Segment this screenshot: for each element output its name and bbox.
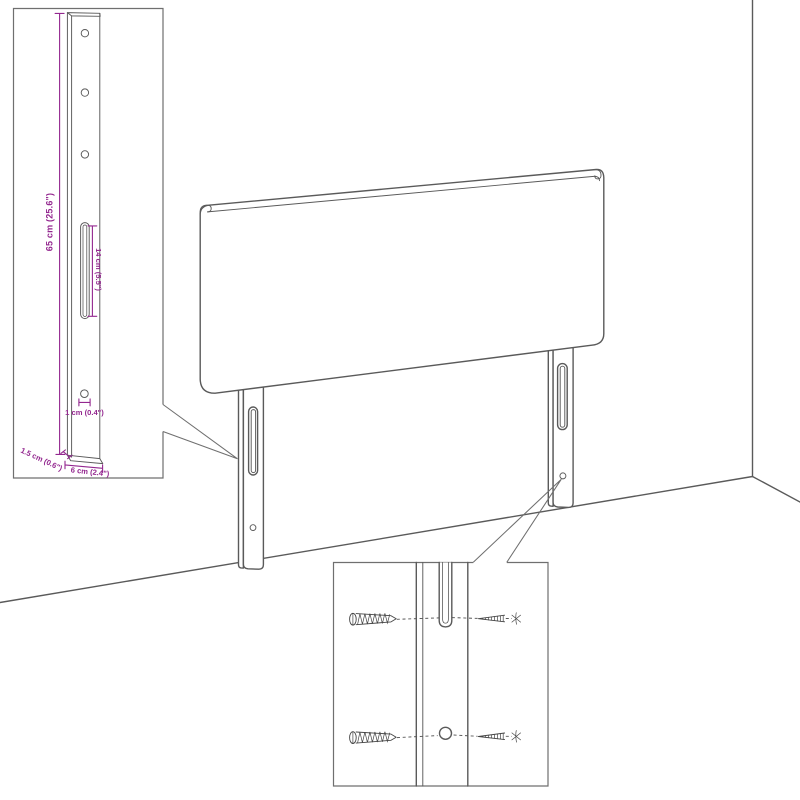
left-leg-side-face	[239, 386, 244, 568]
screw-right-top	[478, 613, 520, 625]
leg-detail-strip	[67, 13, 102, 464]
detail-hole	[440, 727, 452, 739]
floor-line-left	[0, 477, 753, 603]
left-leg	[239, 386, 264, 570]
dim-leg-height-label: 65 cm (25.6")	[45, 193, 55, 251]
strip-bottom-face	[67, 455, 102, 463]
right-leg-front-face	[553, 345, 573, 508]
detail-slot	[439, 563, 452, 627]
screw-left-bottom	[350, 732, 397, 744]
headboard-panel	[200, 169, 604, 393]
assembly-diagram-canvas: 65 cm (25.6") 14 cm (5.5") 1 cm (0.4") 1…	[0, 0, 800, 800]
assembly-diagram-page: 65 cm (25.6") 14 cm (5.5") 1 cm (0.4") 1…	[0, 0, 800, 800]
dashed-guide-bottom	[397, 735, 478, 738]
screw-end-scribble	[512, 613, 521, 625]
right-leg	[548, 345, 573, 508]
detail-strip-openings	[439, 563, 452, 740]
dim-slot-length-label: 14 cm (5.5")	[94, 248, 103, 291]
dim-thickness-label: 1.5 cm (0.6")	[19, 446, 64, 473]
strip-hole-2	[81, 89, 88, 96]
callout-lines	[163, 405, 561, 563]
leg-inset-callout-lines	[163, 405, 238, 459]
strip-top-face	[67, 13, 100, 17]
strip-hole-3	[81, 151, 88, 158]
strip-slot	[81, 223, 90, 319]
right-leg-side-face	[548, 345, 553, 506]
leg-detail-inset: 65 cm (25.6") 14 cm (5.5") 1 cm (0.4") 1…	[14, 9, 164, 479]
screw-detail-inset	[334, 563, 549, 787]
strip-hole-1	[81, 30, 88, 37]
dim-hole-bracket	[79, 399, 90, 406]
panel-outline	[200, 169, 604, 393]
screw-end-scribble	[512, 731, 521, 743]
dashed-guide-top	[397, 618, 478, 620]
dim-hole-label: 1 cm (0.4")	[65, 408, 104, 417]
left-leg-front-face	[243, 386, 263, 570]
floor-line-right	[753, 477, 800, 503]
strip-small-hole	[81, 390, 89, 398]
dimension-annotations: 65 cm (25.6") 14 cm (5.5") 1 cm (0.4") 1…	[19, 13, 110, 478]
strip-slot-inner	[83, 225, 87, 316]
dim-leg-height-line	[55, 13, 65, 454]
screw-right-bottom	[478, 731, 520, 743]
dim-width-label: 6 cm (2.4")	[70, 465, 110, 478]
screw-left-top	[350, 613, 397, 625]
screw-guides	[397, 618, 478, 738]
